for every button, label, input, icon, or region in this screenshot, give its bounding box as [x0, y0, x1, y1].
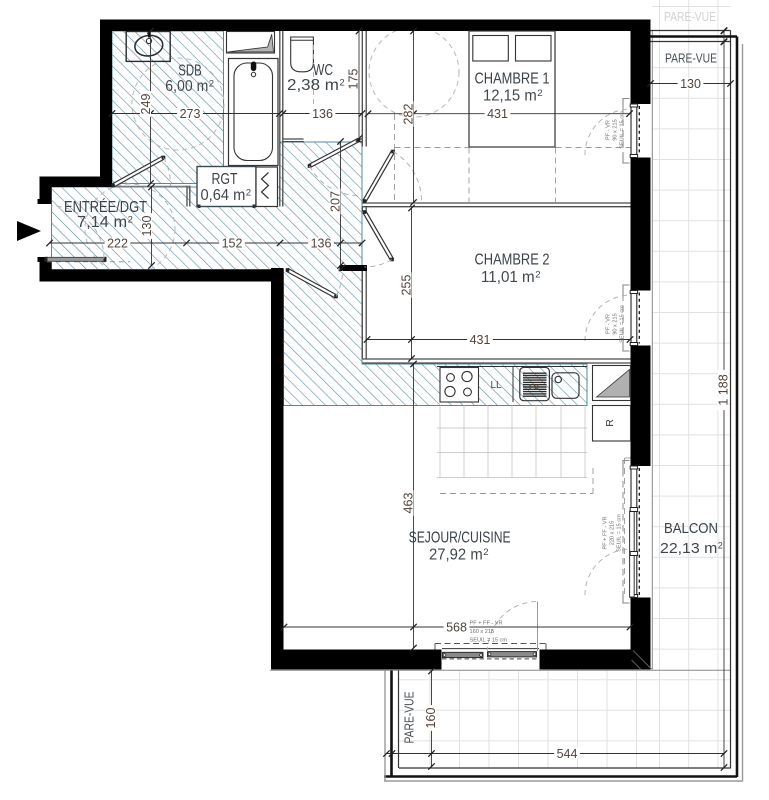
- svg-text:6,00 m: 6,00 m: [165, 78, 208, 95]
- svg-text:SEJOUR/CUISINE: SEJOUR/CUISINE: [409, 530, 511, 547]
- svg-text:PF - VR: PF - VR: [606, 314, 612, 334]
- svg-text:7,14 m: 7,14 m: [77, 214, 127, 231]
- svg-text:27,92 m: 27,92 m: [429, 547, 483, 564]
- svg-text:273: 273: [180, 107, 201, 121]
- svg-text:SEUIL = 15 cm: SEUIL = 15 cm: [617, 514, 623, 552]
- svg-text:90 x 215: 90 x 215: [613, 313, 619, 334]
- svg-text:2,38 m: 2,38 m: [287, 77, 339, 94]
- svg-text:2: 2: [246, 188, 251, 199]
- svg-text:136: 136: [312, 107, 333, 121]
- svg-text:2: 2: [535, 270, 540, 281]
- svg-text:22,13 m: 22,13 m: [660, 541, 717, 557]
- svg-text:PF - VR: PF - VR: [606, 120, 612, 140]
- svg-text:2: 2: [209, 79, 214, 90]
- svg-text:249: 249: [139, 94, 153, 115]
- svg-text:130: 130: [680, 77, 701, 91]
- svg-text:431: 431: [470, 333, 491, 347]
- svg-text:568: 568: [446, 620, 467, 634]
- svg-text:LV: LV: [529, 382, 540, 392]
- svg-text:PARE-VUE: PARE-VUE: [664, 10, 716, 24]
- svg-text:PF + FF - VR: PF + FF - VR: [470, 621, 503, 627]
- svg-text:160: 160: [424, 708, 438, 729]
- svg-text:152: 152: [222, 236, 243, 250]
- svg-text:2: 2: [483, 547, 488, 558]
- svg-text:544: 544: [557, 747, 578, 761]
- svg-text:220 x 215: 220 x 215: [610, 521, 616, 546]
- svg-text:1 188: 1 188: [716, 374, 730, 405]
- svg-text:12,15 m: 12,15 m: [483, 87, 537, 104]
- svg-text:SEUIL = 15 cm: SEUIL = 15 cm: [620, 305, 626, 343]
- svg-text:255: 255: [399, 275, 413, 296]
- svg-text:136: 136: [311, 236, 332, 250]
- svg-text:SEUIL = 15 cm: SEUIL = 15 cm: [470, 638, 508, 644]
- svg-text:0,64 m: 0,64 m: [201, 187, 246, 204]
- svg-text:160 x 215: 160 x 215: [470, 629, 495, 635]
- svg-text:R: R: [604, 419, 616, 427]
- svg-text:463: 463: [401, 493, 415, 514]
- svg-text:CHAMBRE 1: CHAMBRE 1: [475, 71, 550, 88]
- svg-text:2: 2: [718, 541, 723, 551]
- svg-text:2: 2: [537, 88, 542, 99]
- svg-text:BALCON: BALCON: [664, 521, 718, 537]
- svg-text:222: 222: [107, 236, 128, 250]
- svg-text:282: 282: [401, 104, 415, 125]
- svg-text:SEUIL = 15 cm: SEUIL = 15 cm: [620, 111, 626, 149]
- svg-text:LL: LL: [490, 380, 502, 391]
- svg-text:2: 2: [128, 215, 133, 226]
- svg-text:207: 207: [328, 191, 342, 212]
- svg-text:PARE-VUE: PARE-VUE: [665, 52, 717, 66]
- svg-text:90 x 215: 90 x 215: [613, 119, 619, 140]
- svg-text:2: 2: [339, 78, 344, 89]
- svg-text:175: 175: [346, 69, 360, 90]
- svg-text:11,01 m: 11,01 m: [481, 269, 535, 286]
- svg-text:431: 431: [487, 107, 508, 121]
- svg-text:CHAMBRE 2: CHAMBRE 2: [475, 252, 550, 269]
- svg-text:PF + FF - VR: PF + FF - VR: [603, 516, 609, 549]
- svg-text:PARE-VUE: PARE-VUE: [403, 692, 417, 744]
- svg-text:RGT: RGT: [212, 171, 238, 188]
- svg-text:SDB: SDB: [178, 63, 202, 80]
- svg-text:130: 130: [140, 216, 154, 237]
